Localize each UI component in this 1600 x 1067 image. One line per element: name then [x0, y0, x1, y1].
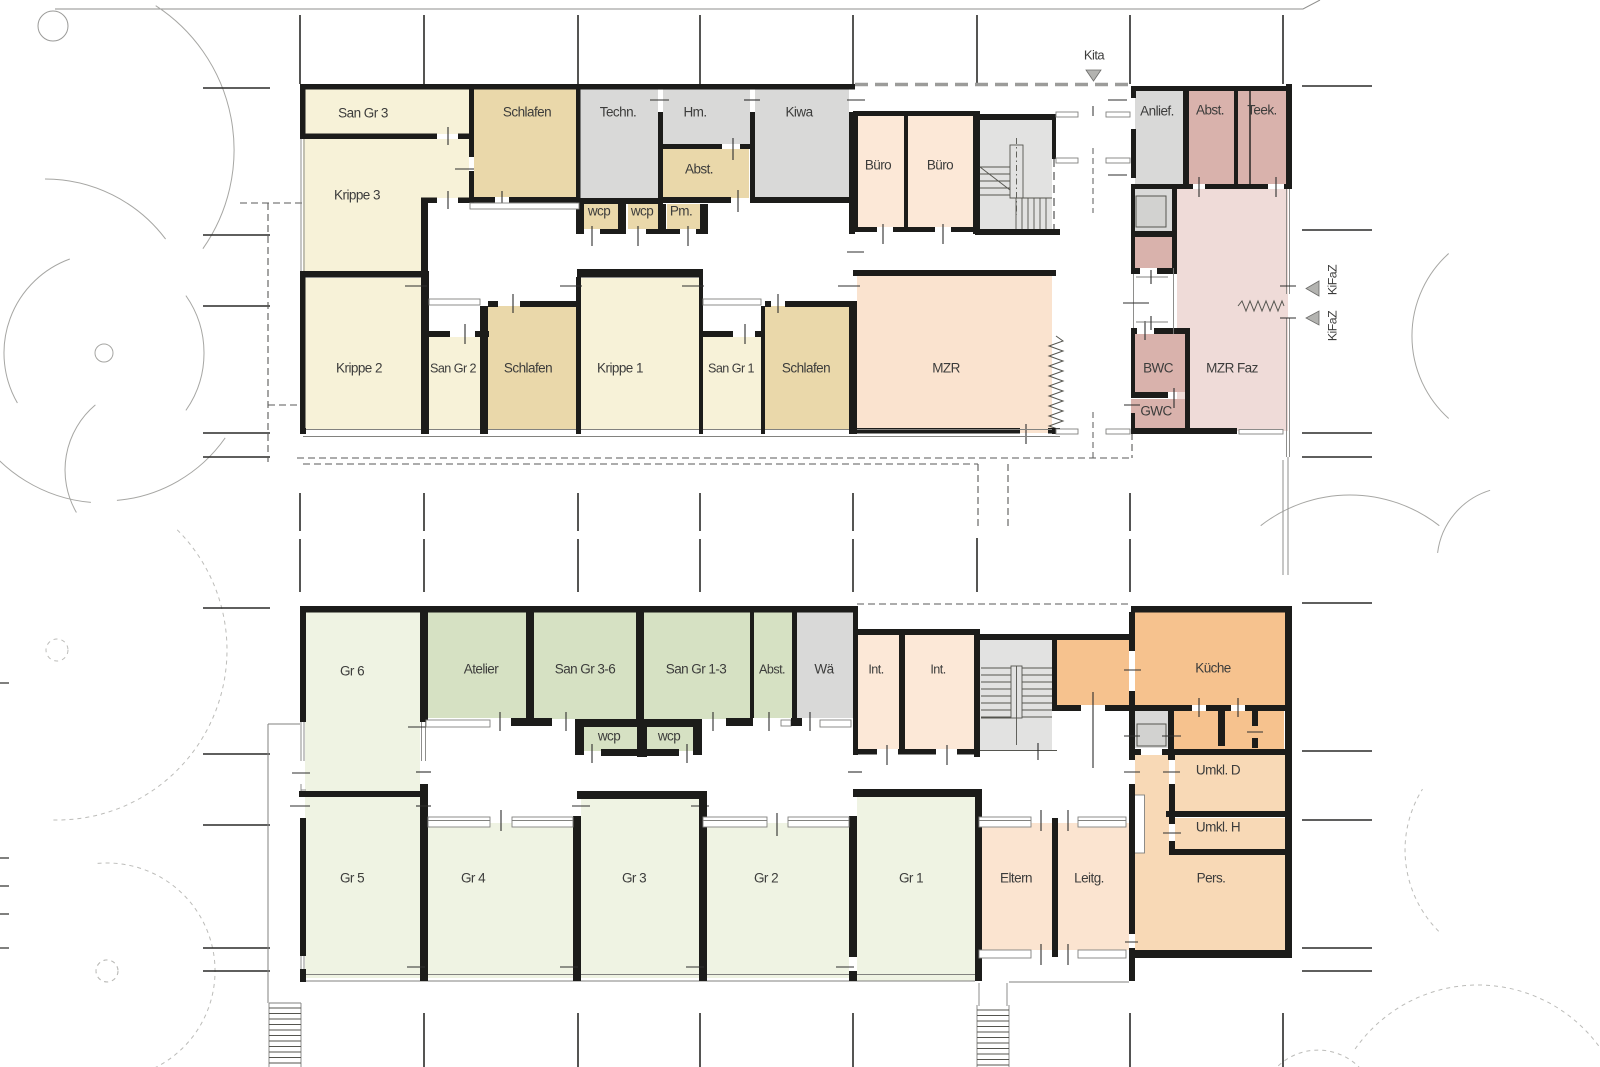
svg-text:Abst.: Abst.: [759, 662, 785, 676]
svg-text:Abst.: Abst.: [1196, 103, 1224, 118]
svg-text:BWC: BWC: [1143, 361, 1174, 376]
svg-text:wcp: wcp: [630, 204, 653, 219]
svg-text:MZR Faz: MZR Faz: [1206, 361, 1258, 376]
svg-text:wcp: wcp: [657, 729, 680, 744]
svg-text:Krippe 2: Krippe 2: [336, 361, 382, 376]
svg-text:Küche: Küche: [1195, 661, 1231, 676]
svg-text:Kita: Kita: [1084, 47, 1106, 62]
svg-text:Anlief.: Anlief.: [1140, 104, 1174, 119]
svg-text:Schlafen: Schlafen: [504, 361, 552, 376]
svg-text:Gr 2: Gr 2: [754, 871, 778, 886]
svg-text:Umkl. H: Umkl. H: [1196, 820, 1240, 835]
svg-text:Schlafen: Schlafen: [782, 361, 830, 376]
svg-text:Gr 6: Gr 6: [340, 664, 364, 679]
svg-text:Gr 4: Gr 4: [461, 871, 486, 886]
svg-text:Leitg.: Leitg.: [1074, 871, 1104, 886]
svg-text:Büro: Büro: [865, 158, 891, 173]
svg-text:Atelier: Atelier: [464, 662, 499, 677]
svg-text:Wä: Wä: [814, 662, 834, 677]
svg-text:Gr 5: Gr 5: [340, 871, 364, 886]
svg-text:Int.: Int.: [930, 662, 945, 676]
svg-text:KiFaZ: KiFaZ: [1325, 310, 1339, 341]
svg-text:Gr 1: Gr 1: [899, 871, 923, 886]
svg-text:San Gr 1: San Gr 1: [708, 361, 755, 375]
svg-text:Hm.: Hm.: [683, 105, 706, 120]
svg-text:Gr 3: Gr 3: [622, 871, 646, 886]
svg-text:Teek.: Teek.: [1247, 103, 1277, 118]
svg-text:Büro: Büro: [927, 158, 953, 173]
svg-text:Int.: Int.: [868, 662, 883, 676]
svg-text:wcp: wcp: [597, 729, 620, 744]
svg-text:Techn.: Techn.: [600, 105, 636, 120]
svg-text:wcp: wcp: [587, 204, 610, 219]
svg-text:Krippe 3: Krippe 3: [334, 188, 380, 203]
svg-text:San Gr 3: San Gr 3: [338, 106, 388, 121]
svg-text:Pers.: Pers.: [1197, 871, 1226, 886]
svg-text:Schlafen: Schlafen: [503, 105, 551, 120]
svg-text:Kiwa: Kiwa: [785, 105, 813, 120]
svg-text:San Gr 3-6: San Gr 3-6: [555, 662, 616, 677]
svg-text:Abst.: Abst.: [685, 162, 713, 177]
svg-text:GWC: GWC: [1140, 404, 1172, 419]
svg-text:San Gr 1-3: San Gr 1-3: [666, 662, 727, 677]
svg-text:Pm.: Pm.: [670, 204, 692, 219]
svg-text:Eltern: Eltern: [1000, 871, 1032, 886]
svg-text:San Gr 2: San Gr 2: [430, 361, 477, 375]
svg-text:Krippe 1: Krippe 1: [597, 361, 643, 376]
svg-text:KiFaZ: KiFaZ: [1325, 264, 1339, 295]
svg-text:MZR: MZR: [932, 361, 960, 376]
svg-text:Umkl. D: Umkl. D: [1196, 763, 1241, 778]
